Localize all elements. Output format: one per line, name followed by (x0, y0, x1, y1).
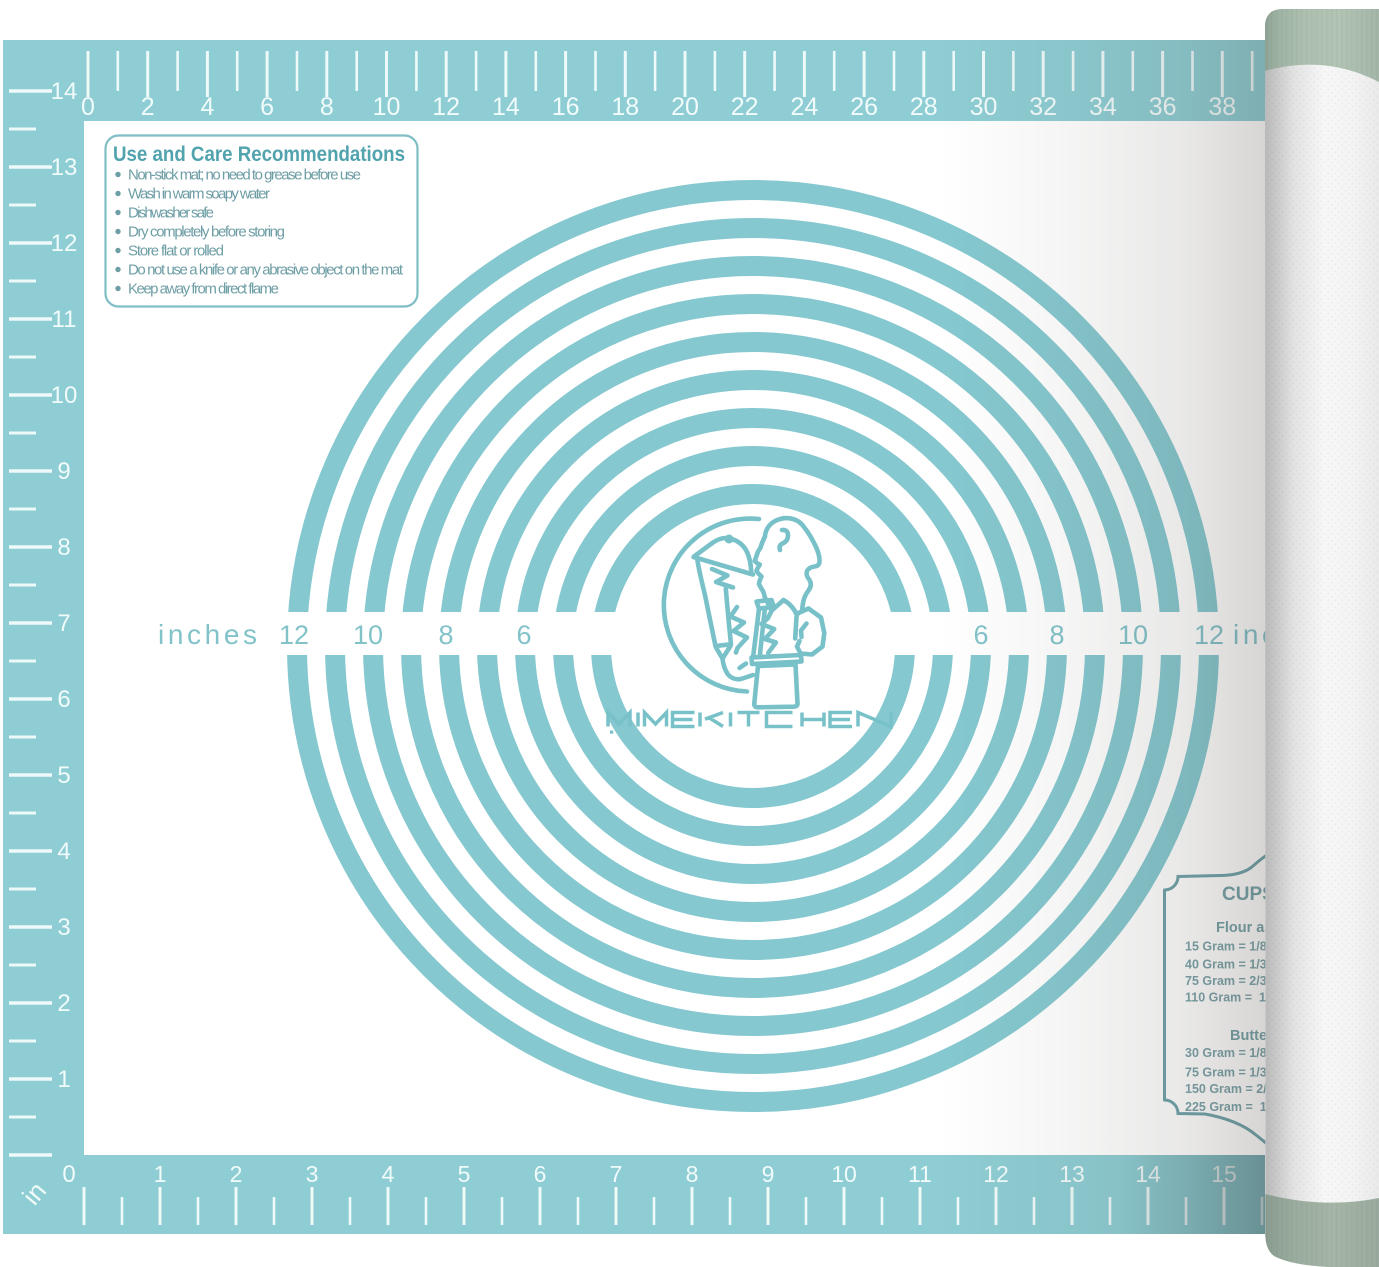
svg-text:11: 11 (908, 1161, 932, 1187)
svg-text:18: 18 (611, 93, 639, 121)
svg-text:20: 20 (671, 93, 699, 121)
svg-text:5: 5 (458, 1161, 471, 1187)
svg-text:0: 0 (62, 1161, 75, 1188)
svg-text:5: 5 (57, 762, 70, 789)
svg-text:7: 7 (610, 1161, 623, 1187)
svg-text:Wash in warm soapy water: Wash in warm soapy water (128, 186, 270, 203)
svg-text:2: 2 (230, 1161, 243, 1187)
svg-text:14: 14 (51, 78, 78, 105)
svg-text:inches: inches (158, 619, 257, 650)
svg-text:Dry completely before storing: Dry completely before storing (128, 224, 285, 241)
svg-text:22: 22 (731, 93, 759, 121)
svg-text:2: 2 (57, 990, 70, 1017)
svg-text:13: 13 (51, 154, 78, 181)
svg-text:10: 10 (353, 620, 383, 650)
svg-text:6: 6 (260, 93, 274, 121)
svg-text:6: 6 (57, 686, 70, 713)
svg-text:3: 3 (306, 1161, 319, 1187)
svg-text:14: 14 (492, 93, 520, 121)
svg-text:3: 3 (57, 914, 70, 941)
svg-text:Keep away from direct flame: Keep away from direct flame (128, 281, 279, 298)
svg-text:10: 10 (831, 1161, 857, 1187)
svg-text:9: 9 (57, 458, 70, 485)
svg-text:16: 16 (552, 93, 580, 121)
svg-text:2: 2 (141, 93, 155, 121)
svg-text:8: 8 (57, 534, 70, 561)
svg-text:11: 11 (52, 306, 77, 333)
svg-text:28: 28 (910, 93, 938, 121)
svg-text:Store flat or rolled: Store flat or rolled (128, 243, 224, 260)
svg-text:8: 8 (320, 93, 334, 121)
svg-text:Non-stick mat; no need to grea: Non-stick mat; no need to grease before … (128, 167, 361, 184)
svg-text:24: 24 (790, 93, 818, 121)
svg-text:10: 10 (373, 93, 401, 121)
svg-text:7: 7 (57, 610, 70, 637)
svg-text:10: 10 (51, 382, 78, 409)
svg-text:6: 6 (516, 620, 531, 650)
svg-text:Dishwasher safe: Dishwasher safe (128, 205, 214, 222)
svg-text:9: 9 (762, 1161, 775, 1187)
svg-text:Do not use a knife or any abra: Do not use a knife or any abrasive objec… (128, 262, 404, 279)
svg-text:26: 26 (850, 93, 878, 121)
svg-text:Use and Care Recommendations: Use and Care Recommendations (113, 142, 405, 166)
svg-text:4: 4 (200, 93, 214, 121)
svg-text:1: 1 (154, 1161, 167, 1187)
svg-text:8: 8 (438, 620, 453, 650)
svg-text:1: 1 (57, 1066, 70, 1093)
svg-text:0: 0 (81, 93, 95, 121)
svg-text:6: 6 (534, 1161, 547, 1187)
svg-text:4: 4 (57, 838, 70, 865)
svg-text:12: 12 (51, 230, 78, 257)
svg-text:4: 4 (382, 1161, 395, 1187)
svg-text:12: 12 (279, 620, 309, 650)
svg-text:8: 8 (686, 1161, 699, 1187)
svg-text:12: 12 (432, 93, 460, 121)
